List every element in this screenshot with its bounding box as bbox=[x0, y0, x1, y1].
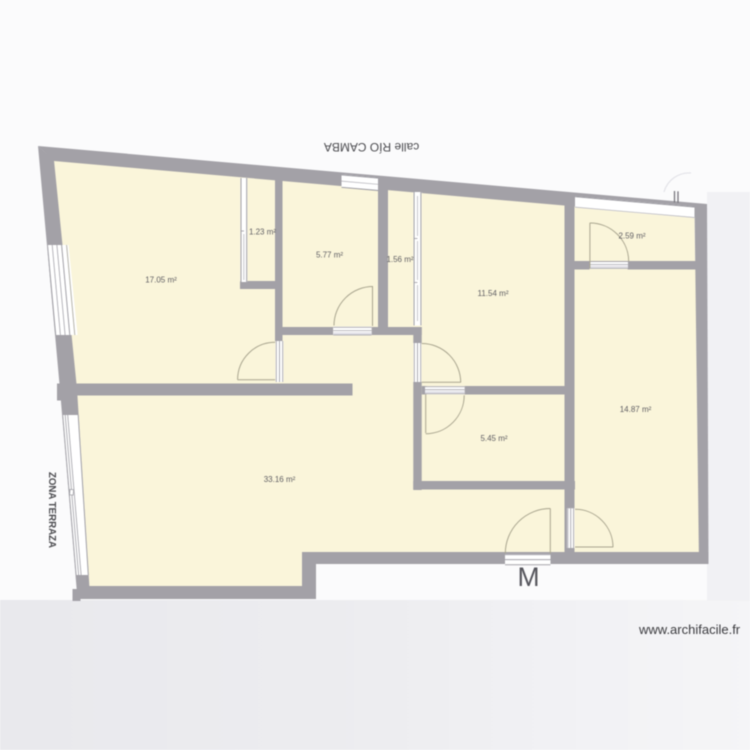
svg-text:5.77 m²: 5.77 m² bbox=[316, 251, 343, 260]
svg-text:17.05 m²: 17.05 m² bbox=[145, 276, 177, 285]
svg-text:www.archifacile.fr: www.archifacile.fr bbox=[638, 622, 741, 637]
svg-text:ZONA TERRAZA: ZONA TERRAZA bbox=[46, 472, 57, 548]
svg-text:1.23 m²: 1.23 m² bbox=[249, 228, 276, 237]
svg-text:33.16 m²: 33.16 m² bbox=[264, 475, 296, 484]
svg-text:1.56 m²: 1.56 m² bbox=[386, 255, 413, 264]
svg-text:5.45 m²: 5.45 m² bbox=[480, 434, 507, 443]
svg-text:14.87 m²: 14.87 m² bbox=[620, 405, 652, 414]
svg-text:2.59 m²: 2.59 m² bbox=[618, 232, 645, 241]
svg-text:M: M bbox=[517, 562, 539, 592]
svg-text:11.54 m²: 11.54 m² bbox=[478, 289, 509, 298]
svg-text:calle RÍO CAMBA: calle RÍO CAMBA bbox=[324, 140, 419, 155]
